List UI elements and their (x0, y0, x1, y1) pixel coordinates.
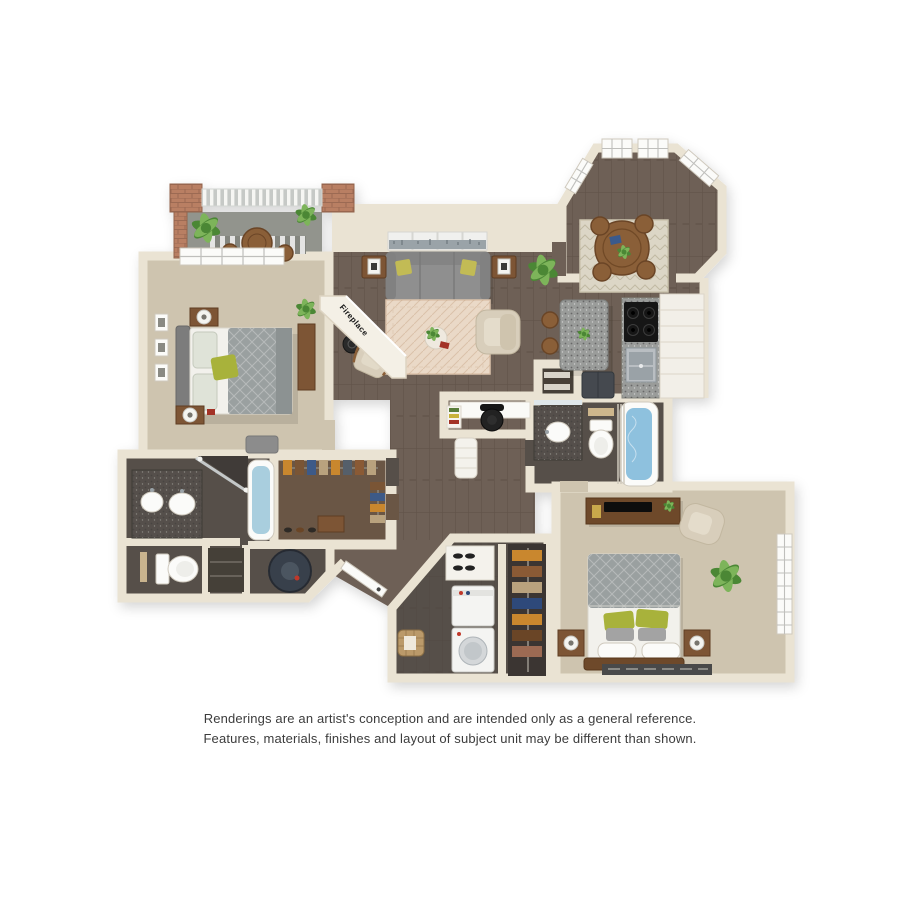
towel-rack (140, 552, 147, 582)
book (207, 409, 215, 415)
bar-stool (542, 312, 558, 328)
pillow (193, 374, 217, 410)
armchair (476, 310, 520, 354)
closet-partition (498, 544, 506, 674)
water-heater (269, 550, 311, 592)
floorplan: Fireplace (122, 139, 792, 678)
floorplan-rendering-page: Fireplace (0, 0, 900, 900)
toilet (589, 420, 613, 458)
washer (452, 586, 494, 626)
accent-pillow (210, 354, 239, 381)
dining-chair (591, 217, 609, 235)
panoramic-wall-art (388, 232, 487, 250)
bar-stool (542, 338, 558, 354)
table-lamp (183, 408, 197, 422)
sink (169, 493, 195, 515)
throw-pillow (460, 259, 477, 276)
bedroom-1-door-opening (322, 420, 335, 450)
master-bath-door-opening (386, 458, 399, 486)
tv (604, 502, 652, 512)
sofa (386, 252, 490, 300)
balcony-railing (202, 189, 322, 206)
bathtub (620, 402, 658, 486)
disclaimer-line-1: Renderings are an artist's conception an… (0, 709, 900, 729)
toilet (156, 554, 198, 584)
disclaimer-line-2: Features, materials, finishes and layout… (0, 729, 900, 749)
dining-chair (593, 263, 611, 281)
pillow (642, 643, 680, 659)
shelf (588, 408, 614, 416)
accent-pillow (635, 609, 668, 630)
throw-pillow (395, 259, 412, 276)
dining-chair (637, 261, 655, 279)
table-lamp (690, 636, 704, 650)
floorplan-canvas: Fireplace (0, 0, 900, 900)
bedroom-2-door-opening (560, 481, 588, 492)
sink (141, 492, 163, 512)
hanging-clothes (512, 550, 542, 657)
laundry-basket (398, 630, 424, 656)
pillow (638, 628, 666, 641)
kitchen-sink (626, 348, 656, 382)
closet-door-opening (386, 494, 399, 520)
bathtub (248, 460, 274, 540)
headboard (176, 326, 190, 416)
decor (592, 505, 601, 518)
table-lamp (197, 310, 211, 324)
stove (624, 302, 658, 342)
media-console (298, 324, 315, 390)
linen-closet (208, 548, 244, 592)
closet-cabinet (318, 516, 344, 532)
bed (584, 554, 684, 670)
office-chair (480, 404, 504, 431)
dining-chair (635, 215, 653, 233)
shoe-shelf (446, 546, 494, 580)
dryer (452, 628, 494, 672)
pillow (606, 628, 634, 641)
table-lamp (564, 636, 578, 650)
brick-pillar (322, 184, 354, 212)
wall-art-frames (155, 314, 168, 381)
bench-ottoman (246, 436, 278, 453)
pillow (598, 643, 636, 659)
mirror (534, 400, 582, 405)
brick-pillar (170, 184, 202, 212)
disclaimer: Renderings are an artist's conception an… (0, 709, 900, 749)
sink (546, 422, 570, 442)
